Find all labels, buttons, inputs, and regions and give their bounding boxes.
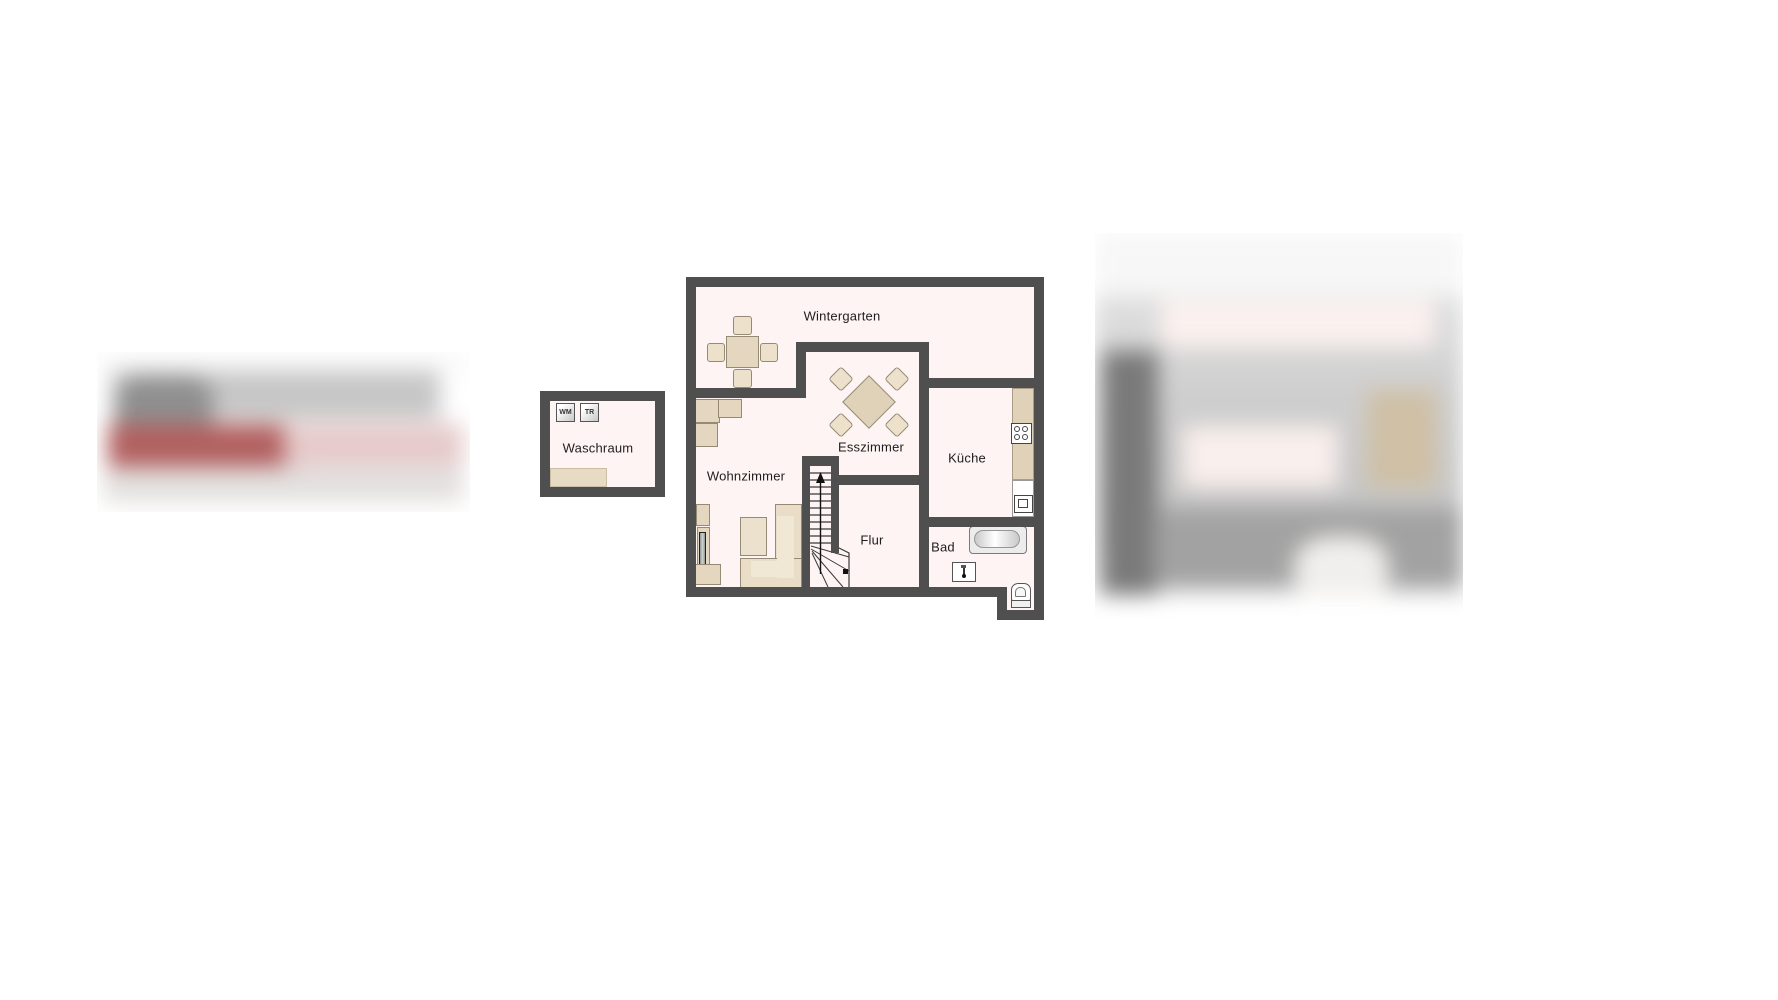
tv: [699, 532, 706, 566]
sideboard: [696, 504, 710, 526]
chair: [733, 369, 752, 388]
wall: [686, 277, 1044, 287]
wall: [831, 456, 839, 553]
wall: [686, 587, 1007, 597]
chair: [733, 316, 752, 335]
corner-cabinet: [694, 399, 720, 423]
bathtub: [969, 526, 1027, 554]
coffee-table: [740, 517, 767, 556]
blurred-photo-content: [1095, 233, 1463, 626]
wall: [832, 475, 929, 485]
dining-table: [726, 336, 759, 368]
wall: [796, 342, 929, 352]
room-label-wintergarten: Wintergarten: [804, 309, 881, 324]
room-label-kueche: Küche: [948, 451, 986, 466]
room-label-bad: Bad: [931, 540, 955, 555]
washing-machine: WM: [556, 403, 575, 422]
chair: [760, 343, 778, 362]
wall: [686, 388, 806, 398]
wall: [919, 517, 1044, 527]
wall: [540, 391, 550, 497]
washing-machine-label: WM: [559, 409, 571, 416]
toilet: [1011, 583, 1031, 601]
kitchen-sink: [1014, 495, 1033, 513]
blurred-photo-content: [97, 352, 470, 512]
laundry-counter: [550, 468, 607, 487]
wall: [686, 277, 696, 597]
lowboard: [694, 564, 721, 585]
wall: [919, 378, 1044, 388]
dryer: TR: [580, 403, 599, 422]
toilet-tank: [1011, 600, 1031, 608]
room-label-waschraum: Waschraum: [563, 441, 634, 456]
chair: [707, 343, 725, 362]
bathroom-sink: [952, 562, 976, 582]
room-label-wohnzimmer: Wohnzimmer: [707, 469, 785, 484]
wall: [997, 610, 1044, 620]
corner-cabinet: [718, 399, 742, 418]
room-label-esszimmer: Esszimmer: [838, 440, 904, 455]
wall: [655, 391, 665, 497]
corner-cabinet: [694, 423, 718, 447]
wall: [802, 456, 810, 597]
wall: [1034, 277, 1044, 620]
stove-icon: [1011, 423, 1032, 444]
room-label-flur: Flur: [860, 533, 883, 548]
wall: [540, 391, 665, 401]
gallery-photo-right[interactable]: [1095, 233, 1463, 626]
gallery-photo-left[interactable]: [97, 352, 470, 512]
sofa-seat: [751, 561, 794, 577]
dryer-label: TR: [585, 409, 594, 416]
wall: [540, 487, 665, 497]
